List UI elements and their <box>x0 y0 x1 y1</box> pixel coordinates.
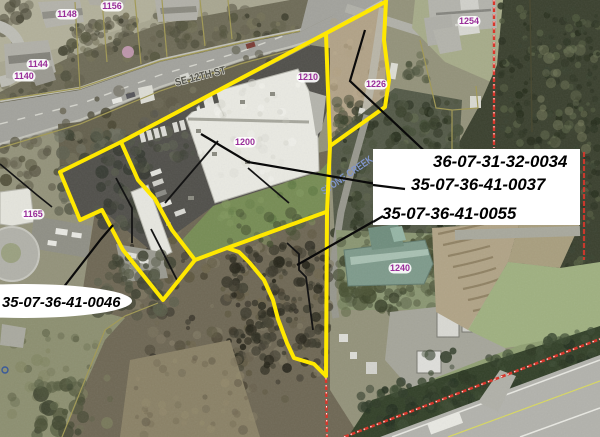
svg-text:1156: 1156 <box>102 1 122 11</box>
svg-text:1165: 1165 <box>23 209 43 219</box>
svg-text:35-07-36-41-0037: 35-07-36-41-0037 <box>411 175 546 194</box>
svg-text:1210: 1210 <box>298 72 318 82</box>
svg-text:1254: 1254 <box>459 16 479 26</box>
svg-text:1140: 1140 <box>14 71 34 81</box>
svg-text:35-07-36-41-0055: 35-07-36-41-0055 <box>382 204 517 223</box>
svg-text:1240: 1240 <box>390 263 410 273</box>
svg-text:35-07-36-41-0046: 35-07-36-41-0046 <box>2 295 121 311</box>
svg-text:1148: 1148 <box>57 9 77 19</box>
svg-text:36-07-31-32-0034: 36-07-31-32-0034 <box>433 152 568 171</box>
svg-text:1200: 1200 <box>235 137 255 147</box>
svg-text:1144: 1144 <box>28 59 48 69</box>
svg-text:1226: 1226 <box>366 79 386 89</box>
